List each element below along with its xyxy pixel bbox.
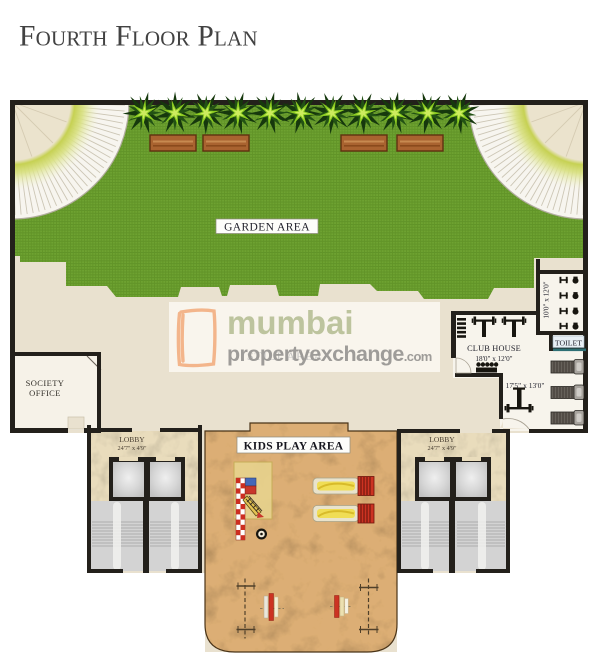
svg-text:TOILET: TOILET: [555, 339, 582, 348]
svg-text:24'7" x 4'9": 24'7" x 4'9": [428, 445, 457, 452]
svg-text:GARDEN AREA: GARDEN AREA: [224, 222, 310, 234]
svg-text:SOCIETY: SOCIETY: [26, 378, 65, 388]
svg-text:mumbai: mumbai: [227, 304, 354, 341]
svg-text:18'0" x 12'0": 18'0" x 12'0": [475, 355, 512, 363]
svg-text:10'0" x 12'0": 10'0" x 12'0": [543, 281, 551, 318]
svg-text:LOBBY: LOBBY: [429, 435, 455, 444]
svg-text:propertyexchange.com: propertyexchange.com: [227, 342, 432, 366]
svg-text:LOBBY: LOBBY: [119, 435, 145, 444]
svg-text:KIDS PLAY AREA: KIDS PLAY AREA: [244, 441, 344, 453]
svg-text:CLUB HOUSE: CLUB HOUSE: [467, 344, 521, 353]
svg-text:OFFICE: OFFICE: [29, 388, 61, 398]
svg-text:24'7" x 4'9": 24'7" x 4'9": [118, 445, 147, 452]
svg-text:Fourth Floor Plan: Fourth Floor Plan: [19, 21, 258, 53]
